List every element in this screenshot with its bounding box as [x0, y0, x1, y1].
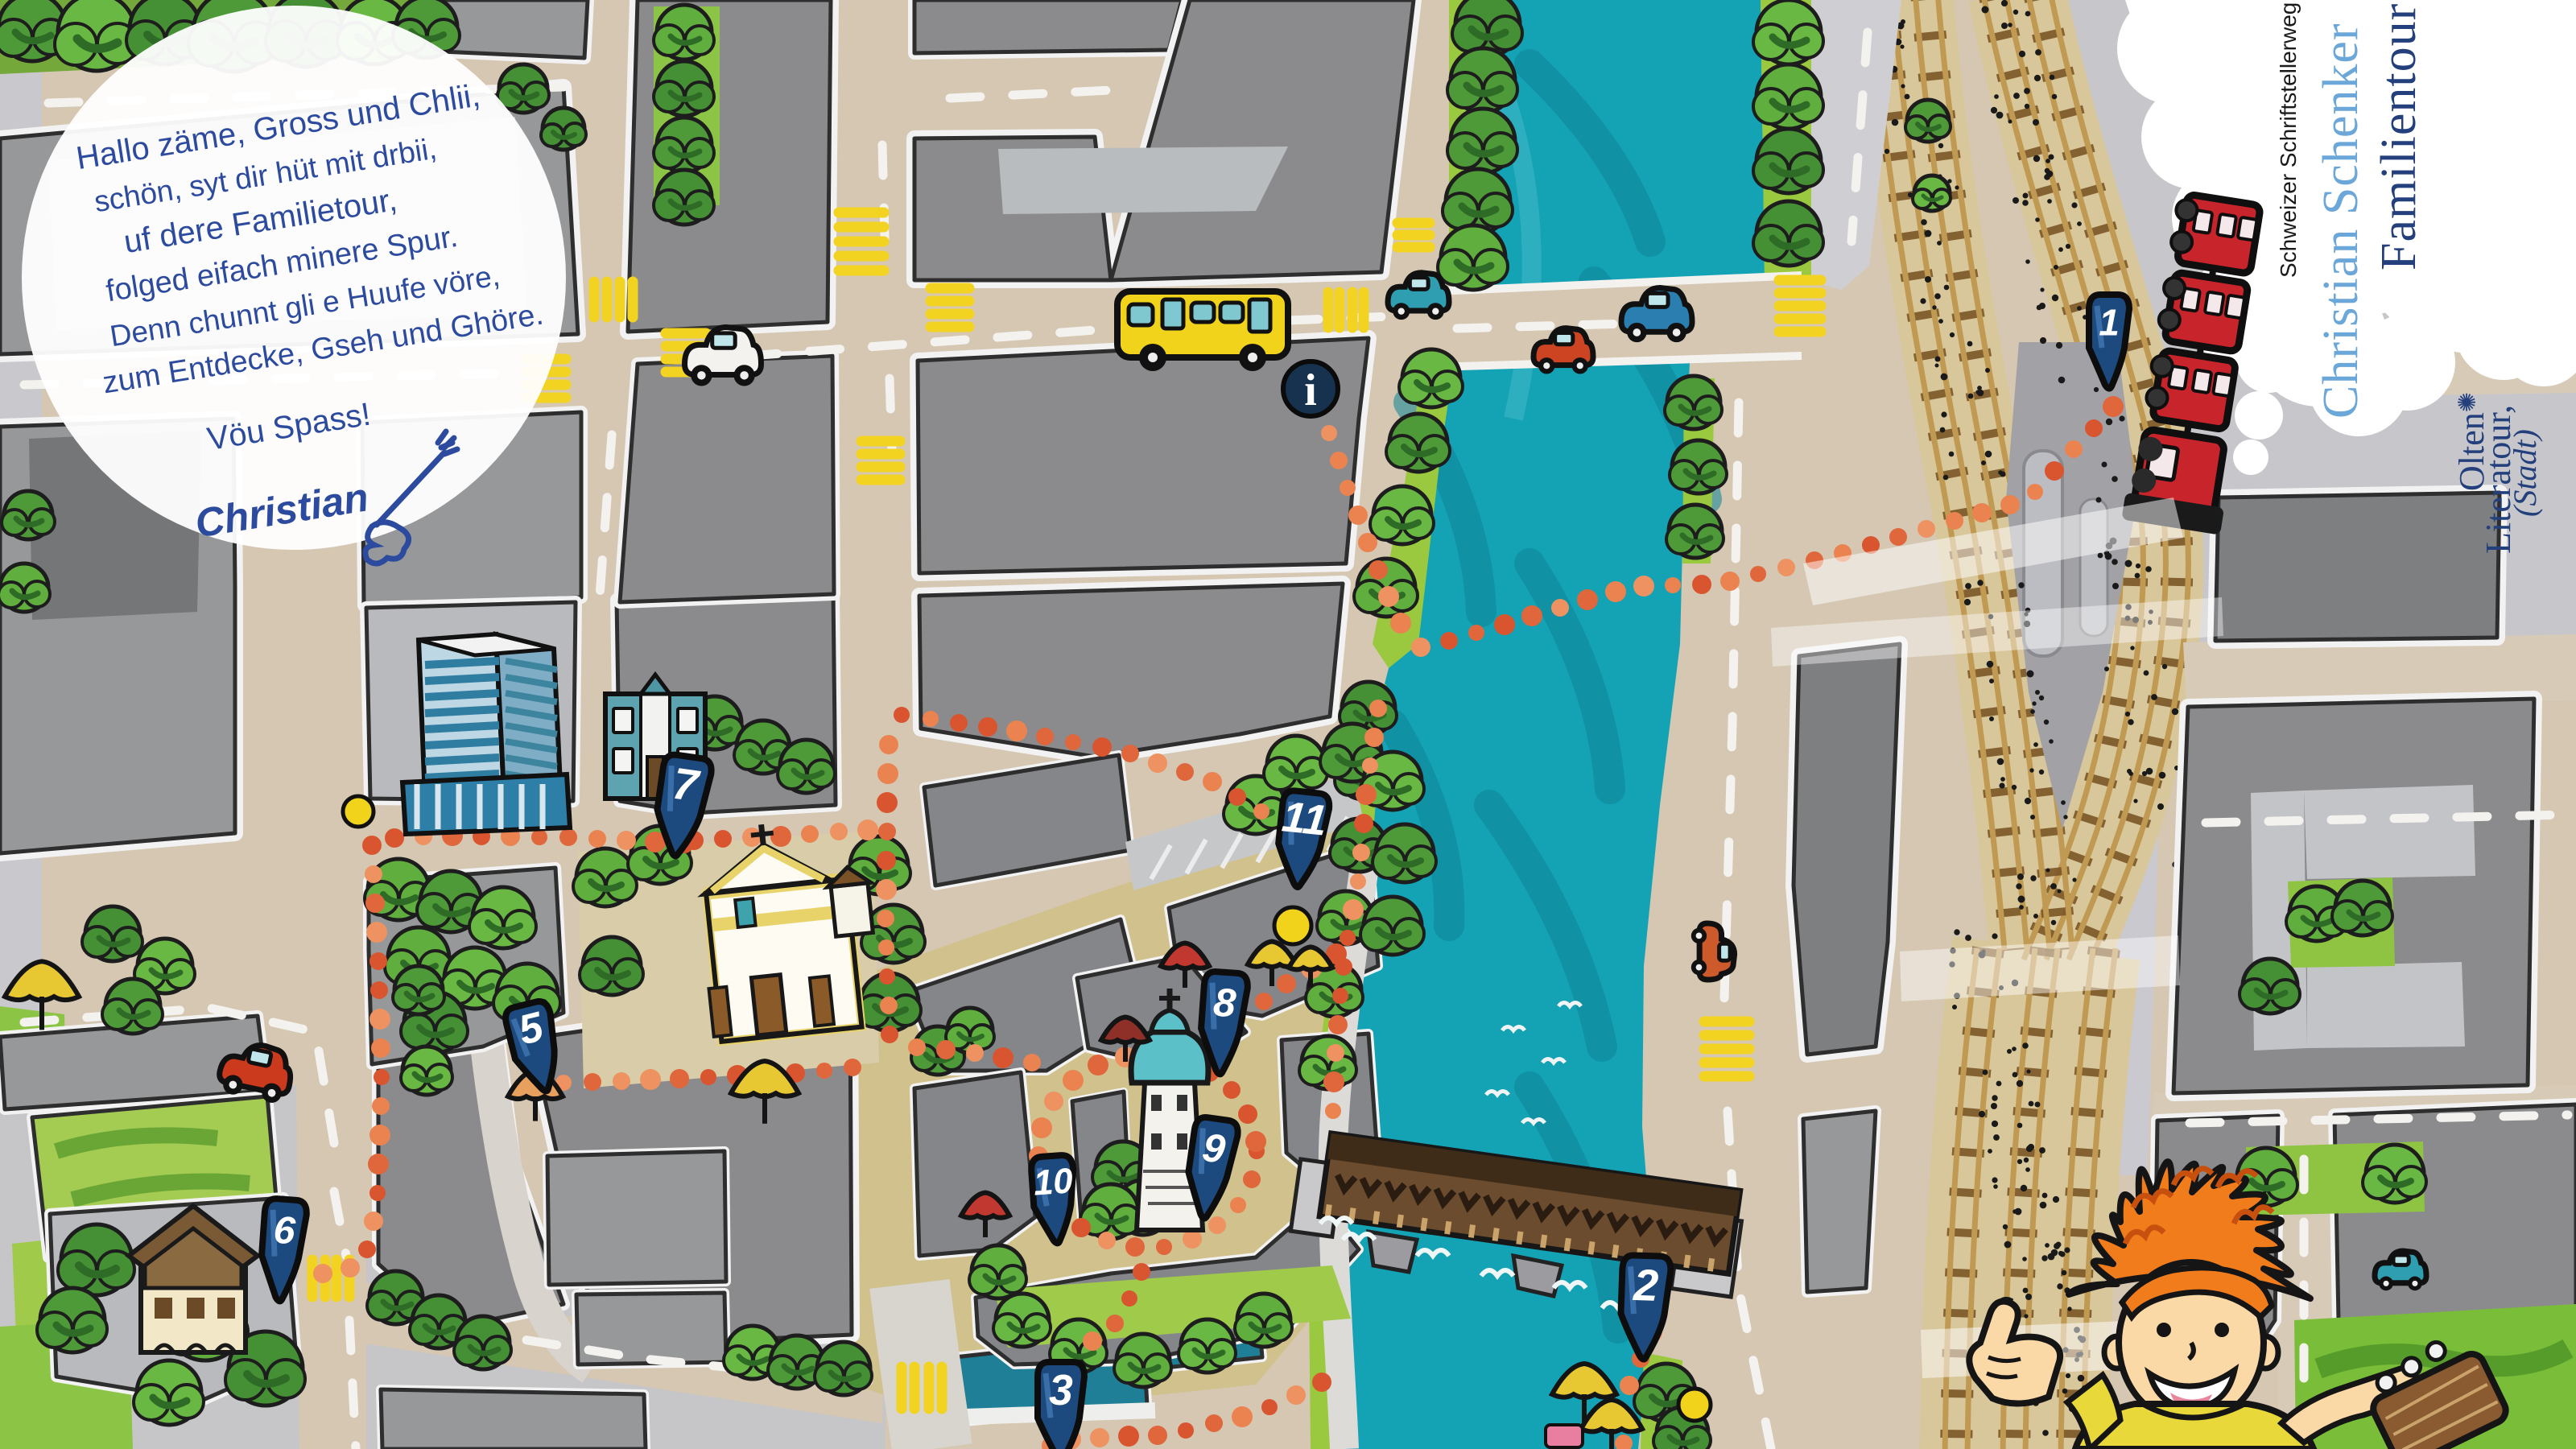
svg-text:(Stadt): (Stadt): [2507, 429, 2543, 517]
svg-text:Schweizer Schriftstellerweg: Schweizer Schriftstellerweg: [2276, 2, 2301, 278]
svg-text:Christian Schenker: Christian Schenker: [2314, 23, 2368, 419]
svg-text:10: 10: [1032, 1161, 1075, 1203]
svg-text:i: i: [1304, 365, 1317, 415]
svg-text:6: 6: [272, 1209, 297, 1253]
svg-text:Familientour: Familientour: [2372, 3, 2426, 270]
svg-text:11: 11: [1280, 793, 1329, 844]
svg-text:2: 2: [1632, 1260, 1659, 1311]
svg-text:3: 3: [1049, 1367, 1073, 1414]
svg-text:8: 8: [1212, 980, 1238, 1026]
svg-text:1: 1: [2099, 301, 2120, 343]
